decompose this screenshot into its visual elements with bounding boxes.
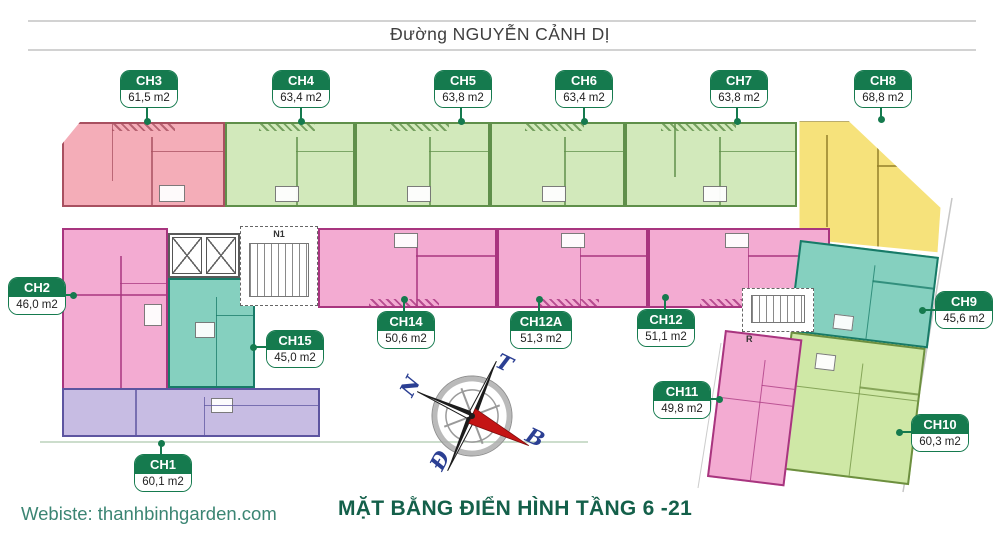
inner-wall	[786, 384, 917, 402]
bathroom	[159, 185, 185, 202]
bathroom	[144, 304, 162, 326]
connector-dot	[298, 118, 305, 125]
bathroom	[832, 314, 854, 331]
stair-core-right	[742, 288, 814, 332]
bathroom	[211, 398, 233, 413]
inner-wall	[135, 390, 137, 435]
bathroom	[394, 233, 418, 248]
connector-dot	[878, 116, 885, 123]
connector-dot	[896, 429, 903, 436]
connector-dot	[581, 118, 588, 125]
bathroom	[815, 353, 837, 371]
page-title: MẶT BẰNG ĐIỂN HÌNH TẦNG 6 -21	[338, 497, 692, 521]
unit-ch14	[318, 228, 497, 308]
unit-ch1	[62, 388, 320, 437]
apartment-label-ch9: CH9 45,6 m2	[935, 291, 993, 329]
inner-wall	[112, 124, 114, 181]
apartment-label-ch12a: CH12A 51,3 m2	[510, 311, 572, 349]
apartment-label-ch4: CH4 63,4 m2	[272, 70, 330, 108]
bathroom	[195, 322, 215, 338]
elevator-shaft-icon	[206, 237, 236, 274]
apartment-label-ch12: CH12 51,1 m2	[637, 309, 695, 347]
bathroom	[561, 233, 585, 248]
connector-dot	[734, 118, 741, 125]
stair-treads-icon	[751, 295, 805, 323]
apartment-label-ch15: CH15 45,0 m2	[266, 330, 324, 368]
bathroom	[725, 233, 749, 248]
inner-wall	[719, 397, 793, 408]
connector-dot	[250, 344, 257, 351]
stair-core-main: N1	[240, 226, 318, 306]
apartment-label-ch14: CH14 50,6 m2	[377, 311, 435, 349]
stair-right-label: R	[746, 334, 753, 344]
apartment-label-ch5: CH5 63,8 m2	[434, 70, 492, 108]
elevator-core-left	[168, 233, 240, 278]
balcony-hatch	[112, 124, 176, 131]
bathroom	[275, 186, 299, 202]
compass-rose-icon: T N B Đ	[398, 350, 548, 490]
compass-letter-bac: B	[521, 422, 548, 453]
compass-letter-nam: N	[398, 371, 426, 401]
unit-ch3	[62, 122, 225, 207]
apartment-label-ch7: CH7 63,8 m2	[710, 70, 768, 108]
bathroom	[407, 186, 431, 202]
bathroom	[542, 186, 566, 202]
apartment-label-ch2: CH2 46,0 m2	[8, 277, 66, 315]
connector-dot	[458, 118, 465, 125]
bathroom	[703, 186, 727, 202]
compass-letter-tay: T	[492, 350, 518, 378]
apartment-label-ch10: CH10 60,3 m2	[911, 414, 969, 452]
connector-dot	[401, 296, 408, 303]
elevator-shaft-icon	[172, 237, 202, 274]
balcony-hatch	[661, 124, 737, 131]
balcony-hatch	[525, 124, 584, 131]
connector-dot	[70, 292, 77, 299]
connector-dot	[158, 440, 165, 447]
apartment-label-ch3: CH3 61,5 m2	[120, 70, 178, 108]
balcony-hatch	[390, 124, 449, 131]
floor-plan-page: Đường NGUYỄN CẢNH DỊ	[0, 0, 1000, 537]
apartment-label-ch6: CH6 63,4 m2	[555, 70, 613, 108]
connector-dot	[536, 296, 543, 303]
connector-dot	[662, 294, 669, 301]
unit-ch6	[490, 122, 625, 207]
unit-ch5	[355, 122, 490, 207]
stair-label: N1	[241, 229, 317, 239]
connector-dot	[716, 396, 723, 403]
connector-dot	[919, 307, 926, 314]
apartment-label-ch11: CH11 49,8 m2	[653, 381, 711, 419]
stair-treads-icon	[249, 243, 309, 297]
inner-wall	[64, 294, 166, 296]
unit-ch4	[225, 122, 355, 207]
balcony-hatch	[540, 299, 599, 306]
apartment-label-ch1: CH1 60,1 m2	[134, 454, 192, 492]
website-text: Webiste: thanhbinhgarden.com	[21, 503, 277, 525]
balcony-hatch	[259, 124, 316, 131]
connector-dot	[144, 118, 151, 125]
inner-wall	[674, 124, 676, 177]
inner-wall	[826, 135, 828, 227]
unit-ch7	[625, 122, 797, 207]
apartment-label-ch8: CH8 68,8 m2	[854, 70, 912, 108]
unit-ch12a	[497, 228, 648, 308]
unit-ch2	[62, 228, 168, 392]
